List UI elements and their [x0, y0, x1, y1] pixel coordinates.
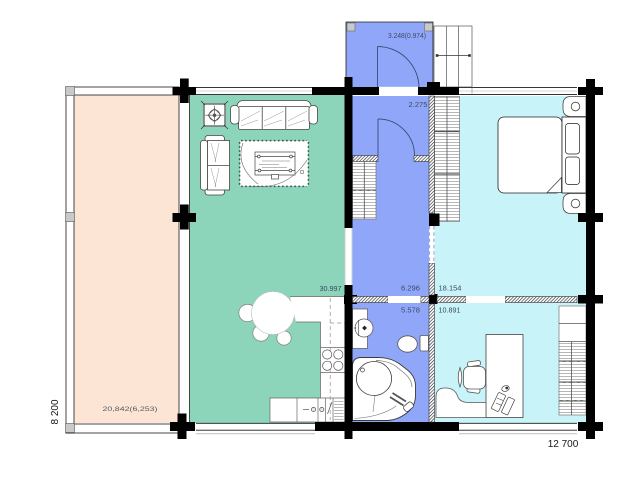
svg-text:6.296: 6.296 — [401, 286, 420, 293]
svg-text:10.891: 10.891 — [439, 308, 461, 315]
svg-text:18.154: 18.154 — [439, 286, 462, 293]
svg-text:3.248(0.974): 3.248(0.974) — [388, 33, 426, 40]
svg-text:12 700: 12 700 — [548, 439, 579, 450]
svg-text:5.578: 5.578 — [401, 308, 420, 315]
svg-text:2.275: 2.275 — [409, 102, 428, 109]
svg-text:20,842(6,253): 20,842(6,253) — [103, 406, 158, 413]
svg-text:30.997: 30.997 — [320, 286, 342, 293]
svg-text:8 200: 8 200 — [50, 399, 61, 424]
